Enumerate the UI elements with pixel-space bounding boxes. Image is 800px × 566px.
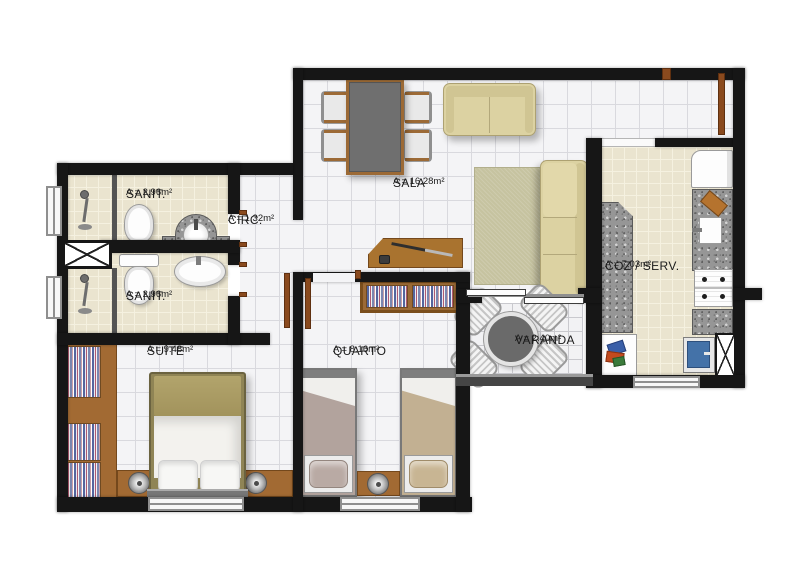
corner-desk xyxy=(368,238,463,268)
chaise-cushion xyxy=(543,163,577,217)
bed-pillow-frame xyxy=(404,455,453,493)
single-bed xyxy=(300,368,357,497)
washer-knob xyxy=(704,352,712,355)
entry-door-leaf xyxy=(718,73,725,135)
bed-blanket xyxy=(154,376,241,416)
varanda-railing xyxy=(456,374,593,386)
wall-corridor-quarto xyxy=(293,272,303,512)
quarto-door-leaf xyxy=(305,278,311,329)
suite-door-leaf xyxy=(284,273,290,328)
wardrobe-clothes xyxy=(366,285,408,308)
stove-cooktop xyxy=(694,269,733,307)
room-area: A = 8.16m² xyxy=(333,345,379,356)
room-area: A = 2.96m² xyxy=(126,290,172,301)
bathroom-duct-shaft xyxy=(62,240,112,269)
bathroom-window xyxy=(46,186,62,236)
shower-rod xyxy=(82,198,88,222)
kitchen-sink xyxy=(699,217,722,244)
stove-divider xyxy=(695,287,732,289)
chair-armrest xyxy=(405,92,429,95)
chaise-sofa xyxy=(540,160,588,295)
wall-kitchen-top xyxy=(655,138,733,147)
sink-faucet xyxy=(196,256,201,265)
sofa-seam xyxy=(543,217,577,218)
wardrobe-clothes xyxy=(64,346,101,398)
room-area: A = 16.28m² xyxy=(393,177,445,188)
shower-base xyxy=(78,224,92,230)
wall-kitchen-left xyxy=(586,138,602,388)
shower-rod xyxy=(82,282,88,306)
burner xyxy=(702,294,707,299)
bed-pillow xyxy=(309,460,348,488)
laundry-tank xyxy=(598,334,637,376)
dining-chair xyxy=(404,91,432,124)
chair-armrest xyxy=(405,158,429,161)
wall-sala-left xyxy=(293,68,303,220)
wall-right-stub xyxy=(733,288,762,300)
shower-base xyxy=(78,308,92,314)
kitchen-faucet xyxy=(692,228,702,232)
kitchen-window xyxy=(633,376,700,388)
shower-head xyxy=(74,272,96,318)
sofa-seam xyxy=(543,254,577,255)
toilet-bowl xyxy=(124,204,154,243)
quarto-door-opening xyxy=(313,273,355,282)
shower-partition xyxy=(112,268,117,334)
dining-chair xyxy=(321,91,349,124)
clothes-pile xyxy=(612,356,625,367)
bathroom-window xyxy=(46,276,62,319)
area-rug xyxy=(474,167,544,285)
kitchen-counter-below-stove xyxy=(692,309,733,335)
burner xyxy=(720,277,725,282)
bed-head-rail xyxy=(402,370,455,378)
quarto-door-jamb xyxy=(355,270,361,279)
wall-top xyxy=(293,68,745,80)
bed-pillow xyxy=(409,460,448,488)
bed-pillow xyxy=(158,460,198,492)
bed-sheet-fold xyxy=(302,378,355,406)
room-area: A = 1.32m² xyxy=(228,214,274,225)
loveseat-sofa xyxy=(443,83,536,136)
burner xyxy=(720,294,725,299)
dining-chair xyxy=(404,129,432,162)
wall-between-bathrooms xyxy=(100,240,240,253)
bathroom-door-jamb xyxy=(239,262,247,267)
bed-sheet-fold xyxy=(402,378,455,406)
sliding-door-panel xyxy=(466,289,526,296)
chair-armrest xyxy=(405,130,429,133)
kitchen-doorway-threshold xyxy=(602,138,655,147)
room-area: A = 2.96m² xyxy=(126,188,172,199)
wall-quarto-right xyxy=(456,272,470,512)
wall-bathrooms-right-a xyxy=(228,163,240,214)
quarto-wardrobe xyxy=(360,280,460,313)
washing-machine xyxy=(683,337,715,373)
refrigerator xyxy=(691,150,733,188)
sofa-backrest xyxy=(446,86,533,97)
chair-armrest xyxy=(324,130,348,133)
bed-pillow-frame xyxy=(304,455,353,493)
wall-bathrooms-right-c xyxy=(228,296,240,345)
bed-pillow xyxy=(200,460,240,492)
double-bed xyxy=(149,372,246,497)
dining-table xyxy=(346,79,404,175)
wall-bathrooms-top xyxy=(57,163,293,175)
chair-armrest xyxy=(324,92,348,95)
entry-door-jamb xyxy=(662,68,671,80)
bedside-lamp xyxy=(367,473,389,495)
chair-armrest xyxy=(405,120,429,123)
bathroom-door-jamb xyxy=(239,242,247,247)
shower-partition xyxy=(112,175,117,241)
chair-armrest xyxy=(324,120,348,123)
room-area: A = 7.03m² xyxy=(605,260,651,271)
single-bed xyxy=(400,368,457,497)
entry-hall-floor xyxy=(586,80,733,138)
room-area: A = 2.40m² xyxy=(515,334,561,345)
chair-armrest xyxy=(324,158,348,161)
room-area: A = 9.48m² xyxy=(147,345,193,356)
quarto-window xyxy=(340,497,420,511)
apartment-floor-plan: SANIT. A = 2.96m² CIRC. A = 1.32m² SANIT… xyxy=(0,0,800,566)
sofa-armrest xyxy=(525,86,533,133)
kitchen-duct-shaft xyxy=(715,333,736,377)
bedside-lamp xyxy=(245,472,267,494)
wardrobe-clothes xyxy=(412,285,454,308)
suite-window xyxy=(148,497,244,511)
sofa-armrest xyxy=(446,86,454,133)
letter-opener xyxy=(391,242,452,257)
bed-head-rail xyxy=(302,370,355,378)
sofa-seam xyxy=(489,97,490,133)
dining-chair xyxy=(321,129,349,162)
wardrobe-clothes xyxy=(64,423,101,461)
bathroom-door-jamb xyxy=(239,292,247,297)
burner xyxy=(702,277,707,282)
sliding-door-panel xyxy=(524,297,584,304)
desk-phone xyxy=(379,255,390,264)
shower-head xyxy=(74,188,96,234)
vanity-faucet xyxy=(194,219,198,230)
